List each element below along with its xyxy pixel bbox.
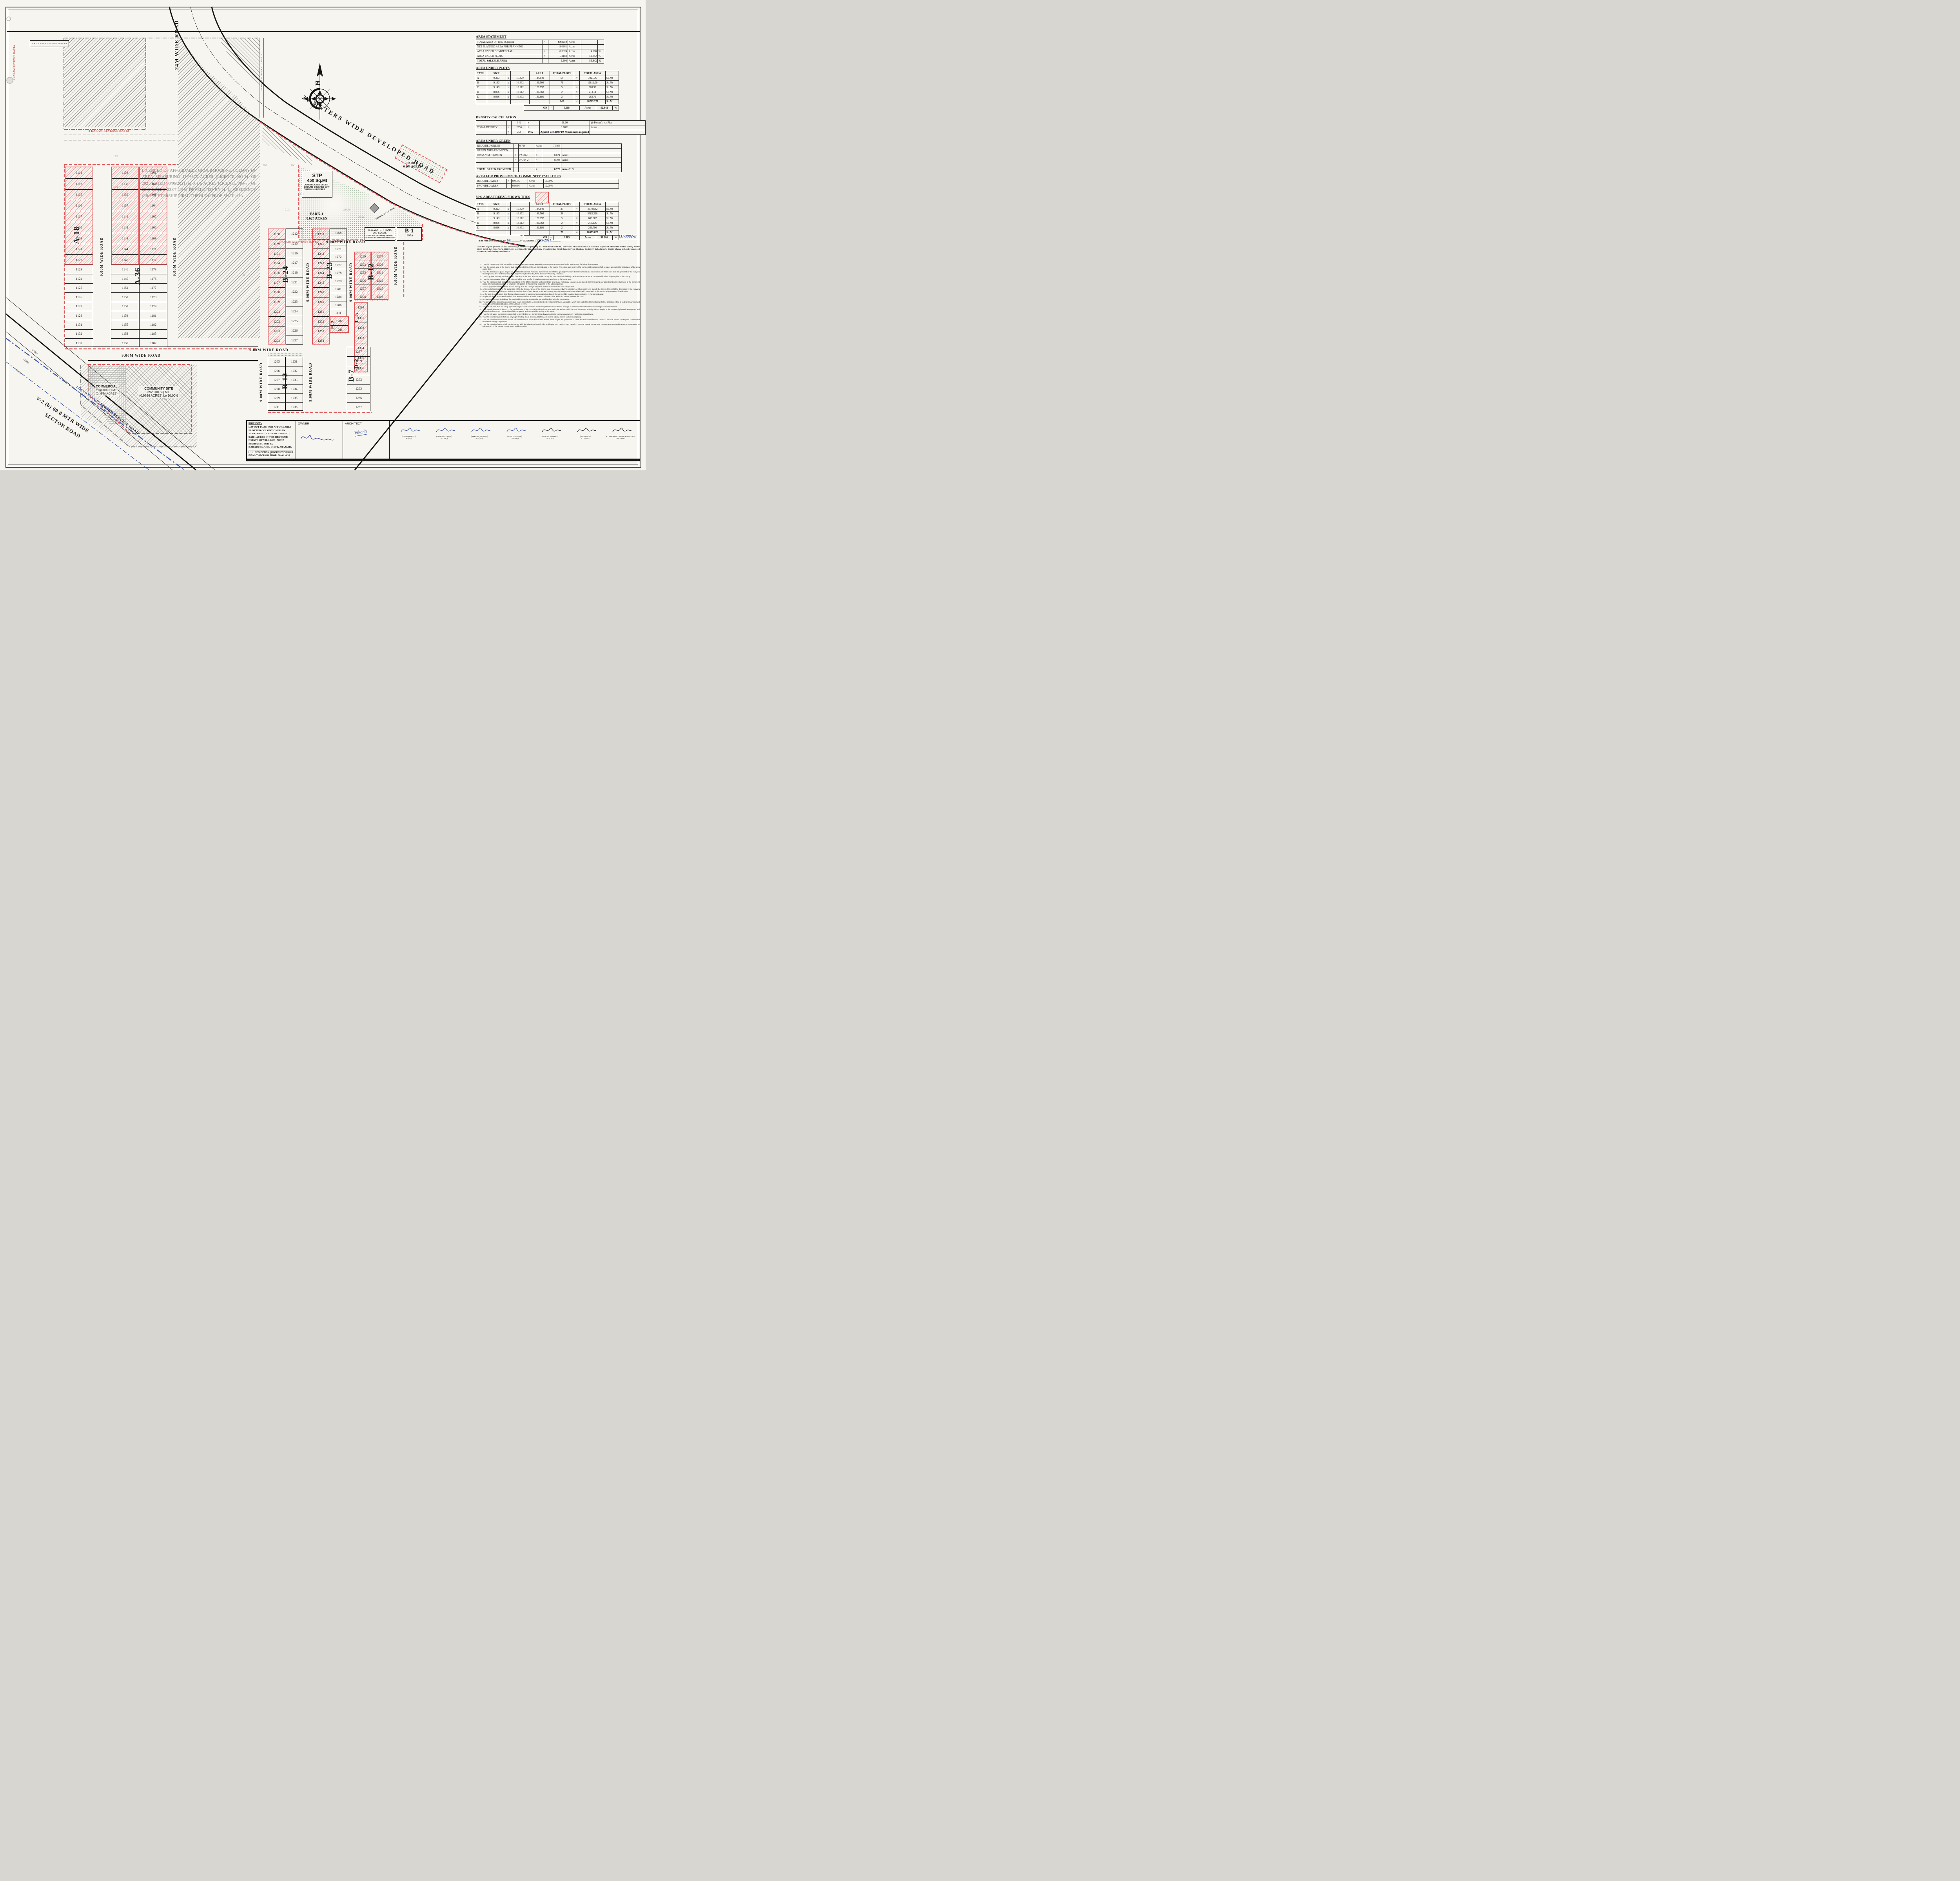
condition-item: 2.That the plotted area of the colony sh… [477,266,640,270]
table-cell: 9.143 [487,216,506,221]
table-cell: 9.143 [487,81,506,85]
table-cell: = [543,54,548,59]
stp-title: STP [302,172,332,178]
table-cell: TOTAL PLOTS [550,202,574,207]
table-cell: % [613,106,619,111]
plot-cell[interactable]: 1159 [111,338,139,347]
table-cell: E [476,226,487,230]
condition-text: That the colonizer shall abide by the di… [483,281,640,285]
table-cell: 2 [550,95,574,100]
b1-plot-box: B-1 1307A [397,227,422,241]
table-cell: 264 [511,130,527,135]
ug-water-tank-box: U.G.WATER TANK 200 SQ.MT. CONSTRUCTED UN… [365,227,395,241]
table-cell: = [574,100,580,104]
plot-cell[interactable]: 1239 [313,229,329,239]
table-cell [511,202,530,207]
table-cell: = [506,121,511,125]
plot-cell[interactable]: 1231 [286,357,303,366]
plan-label: 3/2 [88,395,91,398]
plot-cell[interactable]: 1158 [111,329,139,338]
plot-cell[interactable]: 1117 [65,211,93,222]
table-cell [598,40,604,45]
table-cell: 0.3874 [548,49,568,54]
table-cell: Sq.Mt [606,76,619,81]
plot-cell[interactable]: 1179 [140,302,167,311]
plot-cell[interactable]: 1257 [347,347,370,356]
plot-cell[interactable]: 1177 [140,283,167,292]
table-cell: 2556 [511,125,527,130]
area-under-plots-table: TYPESIZEAREATOTAL PLOTSTOTAL AREAA9.393x… [476,71,619,104]
plot-cell[interactable]: 1137 [112,200,138,211]
condition-item: 3.That the demarcation plans as per site… [477,271,640,275]
density-table: =142x18.00@ Person's per PlotTOTAL DENSI… [476,120,646,135]
rasta-box-label: 3 KARAM REVENUE RASTA [32,43,67,45]
table-cell [574,71,580,76]
table-cell: 0.726 [519,144,535,149]
table-cell: 144.840 [530,207,550,212]
table-cell: TOTAL AREA [580,202,606,207]
plot-cell[interactable]: 1111 [65,167,93,178]
plot-cell[interactable]: 1253 [313,326,329,336]
plot-cell[interactable]: 1254 [313,336,329,346]
condition-text: That the demarcation plans as per site o… [483,271,640,275]
plot-cell[interactable]: 1298 [355,293,370,301]
plot-cell[interactable]: 1191 [269,249,285,258]
plot-cell[interactable]: 1136 [112,189,138,200]
table-cell: Acres [528,184,544,189]
condition-text: That the colonizer/owner shall strictly … [483,323,640,328]
plot-cell[interactable]: 1144 [112,244,138,255]
table-cell: = [543,49,548,54]
condition-number: 3. [477,271,483,275]
signatory-designation: STP HQ [533,438,567,440]
plot-cell[interactable]: 1268 [330,229,347,237]
table-cell [476,130,507,135]
condition-item: 16.That the colonizer/owner shall use on… [477,316,640,318]
table-cell: = [514,158,519,163]
plot-cell[interactable]: 1225 [286,316,303,326]
plot-column-A-18: 112311241125112611271128113111321133 [65,265,93,347]
rasta-box: 3 KARAM REVENUE RASTA [30,40,69,47]
plot-cell[interactable]: 1245 [313,278,329,287]
table-cell: 9.6861 [548,45,568,49]
plot-cell[interactable]: 1216 [286,248,303,258]
signatory-slot: (RAKESH BANSAL)ATP(HQ) [463,425,496,440]
plot-cell[interactable]: 1125 [65,283,93,292]
condition-item: 14.That you will have no objection to th… [477,308,640,313]
table-cell: = [574,90,580,95]
table-cell: = [506,130,511,135]
table-cell: 5.506 [548,59,568,63]
plan-label: 9.00M WIDE ROAD [394,246,398,285]
plot-cell[interactable]: 1299 [355,303,367,313]
table-cell: Acres 7. % [561,167,621,172]
plot-cell[interactable]: 1122 [65,254,93,265]
plot-cell[interactable]: 1152 [111,292,139,301]
table-cell [543,163,561,167]
condition-text: That the colonizer/owner shall ensure th… [483,319,640,323]
table-cell [506,100,511,104]
freeze-hatch-swatch [535,192,549,203]
table-cell: = [535,158,543,163]
table-cell: 9.143 [487,85,506,90]
plot-cell[interactable]: 1126 [65,292,93,301]
plot-cell[interactable]: 1201 [269,307,285,317]
plan-label: 20/1 [291,165,296,167]
table-cell: AREA UNDER COMMERCIAL [476,49,543,54]
plot-cell[interactable]: 1182 [140,320,167,329]
plot-cell[interactable]: 1259 [347,356,370,365]
plot-cell[interactable]: 1134 [112,167,138,178]
park1-label: PARK-1 0.624 ACRES [307,212,327,220]
plot-cell[interactable]: 1185 [140,329,167,338]
table-cell: 15.420 [511,207,530,212]
table-cell: 603.99 [580,85,606,90]
plot-cell[interactable]: 1302 [355,323,367,333]
table-cell: 0.9686 [512,184,528,189]
signatory-designation: JD(HQ) [392,438,426,440]
plot-cell[interactable]: 1123 [65,265,93,274]
plot-cell[interactable]: 1205 [268,357,285,366]
table-cell: = [574,76,580,81]
table-cell: Acres [561,158,621,163]
condition-item: 18.That the colonizer/owner shall strict… [477,323,640,328]
table-cell: TOTAL PLOTS [550,71,574,76]
table-cell: 9.68610 [548,40,568,45]
condition-number: 4. [477,276,483,278]
plot-cell[interactable]: 1223 [286,297,303,307]
table-cell: 13.212 [511,221,530,226]
plot-cell[interactable]: 1154 [111,311,139,320]
plot-cell[interactable]: 1111 [330,309,347,317]
table-cell: TOTAL AREA [580,71,606,76]
plot-cell[interactable]: 1131 [65,320,93,329]
table-cell: 8.066 [487,90,506,95]
plot-cell[interactable]: 1222 [286,287,303,297]
condition-number: 16. [477,316,483,318]
plot-cell[interactable]: 1307 [372,252,388,261]
table-cell: = [507,179,512,184]
table-cell [506,230,511,235]
table-cell: 27 [550,207,574,212]
plot-cell[interactable]: 1133 [65,338,93,347]
table-cell: 13.212 [511,216,530,221]
plot-cell[interactable]: 1252 [313,316,329,326]
table-cell: 5.1184 [548,54,568,59]
table-cell: 8.066 [487,95,506,100]
condition-number: 8. [477,288,483,292]
green-strip [268,354,303,356]
table-cell: 72 [550,230,574,235]
table-cell: PPA [527,130,539,135]
plot-cell[interactable]: 1316 [372,293,388,301]
condition-number: 14. [477,308,483,313]
condition-number: 12. [477,301,483,305]
plot-cell[interactable]: 1212 [286,229,303,239]
plot-cell[interactable]: 1227 [286,336,303,345]
table-cell: x [506,90,511,95]
plot-cell[interactable]: 1198 [269,287,285,297]
plot-cell[interactable]: 1189 [269,239,285,249]
plot-cell[interactable]: 1286 [330,301,347,309]
table-cell: = [548,106,554,111]
table-cell: 0.624 [543,153,561,158]
plot-cell[interactable]: 1181 [140,311,167,320]
table-cell: = [574,230,580,235]
table-cell: Sq.Mt [606,85,619,90]
table-cell: 131.895 [530,95,550,100]
plot-cell[interactable]: 1202 [269,316,285,326]
plot-cell[interactable]: 1115 [65,189,93,200]
plot-cell[interactable]: 1116 [65,200,93,211]
table-cell: 131.895 [530,226,550,230]
plot-cell[interactable]: 1204 [269,336,285,346]
table-cell [476,158,514,163]
condition-text: That the plotted area of the colony shal… [483,266,640,270]
table-cell: = [535,167,543,172]
plot-cell[interactable]: 1267 [347,402,370,411]
plot-cell[interactable]: 1248 [313,287,329,297]
plot-cell[interactable]: 1315 [372,285,388,293]
table-cell: Sq.Mt [606,226,619,230]
plot-cell[interactable]: 1242 [313,249,329,258]
plan-label: 191/2/2/2 [189,188,198,190]
plot-cell[interactable]: 1124 [65,274,93,283]
plot-cell[interactable]: 1171 [140,244,167,255]
plot-cell[interactable]: 1209 [268,393,285,402]
table-cell: x [506,76,511,81]
table-cell: 2 [550,226,574,230]
condition-item: 5.That the revenue rasta falling in the … [477,278,640,280]
table-cell [561,163,621,167]
condition-number: 18. [477,323,483,328]
plan-label: 9.00M WIDE ROAD [306,263,310,302]
condition-text: That the colonizer/owner shall use only … [483,316,581,318]
table-cell: REQUIRED AREA [476,179,507,184]
table-cell [535,149,543,153]
green-title: AREA UNDER GREEN [476,139,510,143]
plot-cell[interactable]: 1153 [111,302,139,311]
condition-text: No plot will derive an access from less … [483,296,584,297]
table-cell [581,40,598,45]
table-cell: A [476,76,487,81]
table-cell: 13.212 [511,85,530,90]
table-cell: PROVIDED AREA [476,184,507,189]
plan-label: 3 KARAM REVENUE RASTA [89,129,129,132]
plot-cell[interactable]: 1178 [140,292,167,301]
plan-label: 20/2 [263,165,267,167]
condition-text: Any excess area over and above the permi… [483,298,570,300]
plot-cell[interactable]: 1121 [65,244,93,255]
plot-cell[interactable]: 1162 [140,178,167,189]
block-label-B-12: B-12 [367,263,376,280]
table-cell [606,202,619,207]
table-cell [543,149,561,153]
plan-label: 73//4 [162,399,167,401]
condition-text: That for proper planning and integration… [483,276,630,278]
table-cell [561,144,621,149]
table-cell [506,202,511,207]
table-cell: 149.506 [530,81,550,85]
plot-cell[interactable]: 1127 [65,302,93,311]
plot-cell[interactable]: 1226 [286,326,303,336]
table-cell: % [598,59,604,63]
table-cell: 213.14 [580,90,606,95]
plot-cell[interactable]: 1203 [269,326,285,336]
plot-cell[interactable]: 1155 [111,320,139,329]
signature-icon [573,425,597,435]
block-label-E-2: E-2 [330,320,336,329]
plot-cell[interactable]: 1145 [112,254,138,265]
plot-cell[interactable]: 1266 [347,393,370,402]
table-cell: = [543,45,548,49]
table-cell: 5.118 [554,106,580,111]
table-cell: x [506,226,511,230]
table-cell: = [507,184,512,189]
table-cell [511,100,530,104]
table-cell: = [574,95,580,100]
plot-cell[interactable]: 1251 [313,307,329,317]
lc-code-handwritten: LC-3982-E [619,234,637,239]
table-cell: = [574,221,580,226]
plot-cell[interactable]: 1236 [286,402,303,411]
plan-label: 15/2 [229,191,234,193]
table-cell: 13.212 [511,90,530,95]
plot-cell[interactable]: 1164 [140,200,167,211]
condition-item: 17.That the colonizer/owner shall ensure… [477,319,640,323]
table-cell: 79 [550,81,574,85]
plot-cell[interactable]: 1173 [140,265,167,274]
condition-text: That no property/plot shall derive acces… [483,286,574,288]
licence-paragraph: That this Layout plan for an area measur… [477,246,640,253]
revenue-land-hatch-topleft [64,38,146,127]
table-cell [581,45,598,49]
architect-label: ARCHITECT [345,422,387,425]
plan-label: 24M WIDE ROAD [174,20,180,70]
table-cell: 106.568 [530,90,550,95]
plot-cell[interactable]: 1141 [112,211,138,222]
condition-number: 10. [477,296,483,297]
plot-cell[interactable]: 1211 [268,402,285,411]
plot-cell[interactable]: 1281 [330,285,347,293]
table-cell: 16.352 [511,95,530,100]
plot-cell[interactable]: 1235 [286,393,303,402]
table-cell: Acres [568,59,581,63]
plot-cell[interactable]: 1163 [140,189,167,200]
plot-cell[interactable]: 1128 [65,311,93,320]
plan-label: 23 [243,274,245,276]
plot-cell[interactable]: 1169 [140,233,167,244]
table-cell: Acres [561,153,621,158]
table-cell: 9.393 [487,76,506,81]
plan-label: 3 KARAM M REVENUE RASTA [261,53,263,92]
table-cell: TOTAL DENSITY [476,125,507,130]
stp-note: CONSTRUCTED UNDER GROUND COVERED WITH GR… [302,184,332,191]
table-cell: = [574,85,580,90]
plot-cell[interactable]: 1284 [330,293,347,301]
plot-cell[interactable]: 1143 [112,233,138,244]
condition-item: 7.That no property/plot shall derive acc… [477,286,640,288]
condition-text: All green belts provided in the layout p… [483,288,640,292]
table-cell: PARK-1 [519,153,535,158]
table-cell: = [535,163,543,167]
table-cell: Acres [568,54,581,59]
plot-cell[interactable]: 1172 [140,254,167,265]
plot-cell[interactable]: 1188 [269,229,285,239]
table-cell: 11811.00 [580,81,606,85]
plot-cell[interactable]: 1249 [313,297,329,307]
density-title: DENSITY CALCULATION [476,115,516,119]
plan-label: 9.00M WIDE ROAD [249,348,289,352]
plot-cell[interactable]: 1167 [140,211,167,222]
plot-column-A-36: 113411351136113711411142114311441145 [111,167,139,265]
table-cell: AREA UNDER PLOTS [476,54,543,59]
plot-cell[interactable]: 1263 [347,384,370,393]
table-cell: = [535,153,543,158]
plot-column-B-24: 1188118911911194119611971198119912011202… [268,229,286,345]
table-cell: Acres [535,144,543,149]
plot-cell[interactable]: 1215 [286,239,303,249]
table-cell: Sq.Mt [606,95,619,100]
table-cell: B [476,81,487,85]
table-cell: 8.066 [487,221,506,226]
table-cell: = [506,125,511,130]
plot-cell[interactable]: 1199 [269,297,285,307]
table-cell: 16.352 [511,212,530,216]
plot-cell[interactable]: 1303 [355,333,367,343]
plot-cell[interactable]: 1112 [65,178,93,189]
plot-cell[interactable]: 1271 [330,245,347,253]
table-cell: 5382.228 [580,212,606,216]
block-label-B-12: B-12 [281,373,290,389]
plot-cell[interactable]: 1176 [140,274,167,283]
plot-cell[interactable]: 1297 [355,285,370,293]
signatory-slot: (BABITA GUPTA)DTP(HQ) [498,425,532,440]
table-cell: x [506,85,511,90]
block-label-A-36: A-36 [134,267,143,285]
plan-label: 9.00M WIDE ROAD [349,263,353,302]
condition-number: 15. [477,313,483,315]
conditions-list: 1.That this Layout Plan shall be read in… [477,263,640,328]
plot-column-B-23: 1239124112421243124412451248124912511252… [312,229,330,345]
table-cell: 603.987 [580,216,606,221]
owner-signature [298,430,337,446]
plot-cell[interactable]: 1168 [140,222,167,233]
plot-cell[interactable]: 1187 [140,338,167,347]
project-cell: PROJECT:- LAYOUT PLAN FOR AFFORDABLE PLO… [249,422,293,458]
table-cell: 2 [550,221,574,226]
table-cell [590,130,646,135]
plot-cell[interactable]: 1161 [140,167,167,178]
plot-cell[interactable]: 1224 [286,307,303,316]
community-facilities-table: REQUIRED AREA=0.9686Acres10.00%PROVIDED … [476,179,619,189]
table-cell: 0.728 [543,167,561,172]
plot-cell[interactable]: 1132 [65,329,93,338]
table-cell: 7.50% [543,144,561,149]
table-cell: Sq.Mt [606,221,619,226]
condition-number: 5. [477,278,483,280]
table-cell: 4.000 [581,49,598,54]
signature-icon [397,425,421,435]
signatory-designation: DTCP (HR) [604,438,637,440]
table-cell: = [543,40,548,45]
block-label-B-7: B-7 [347,369,356,382]
plot-cell[interactable]: 1272 [330,253,347,261]
plot-cell[interactable]: 1142 [112,222,138,233]
table-cell: = [574,212,580,216]
table-cell: A [476,207,487,212]
table-cell: 16.352 [511,226,530,230]
